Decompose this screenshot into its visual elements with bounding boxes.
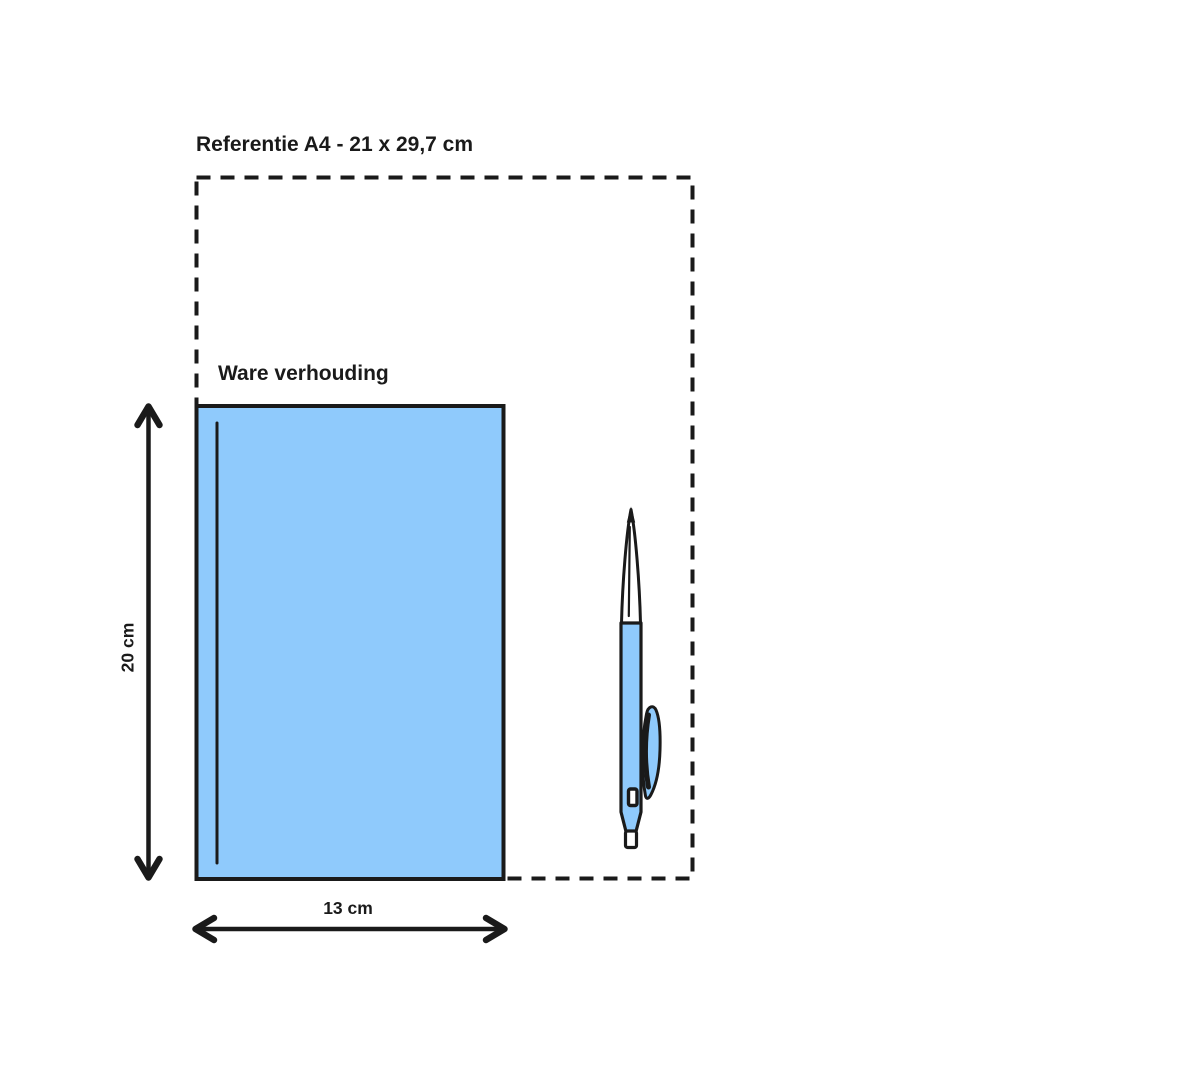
reference-title: Referentie A4 - 21 x 29,7 cm	[196, 133, 473, 157]
pen-refill-line	[629, 527, 630, 616]
height-dimension-label: 20 cm	[118, 612, 139, 684]
width-dimension-label: 13 cm	[270, 898, 426, 919]
size-comparison-diagram: Referentie A4 - 21 x 29,7 cm Ware verhou…	[0, 0, 1200, 1066]
pen-tip-icon	[627, 507, 635, 523]
object-rectangle	[197, 406, 504, 879]
diagram-drawing	[0, 0, 1200, 1066]
pen-button-hole	[629, 789, 638, 806]
height-dimension-arrow	[138, 407, 160, 878]
object-caption: Ware verhouding	[218, 362, 389, 386]
pen-illustration	[621, 507, 660, 848]
pen-push-button	[626, 831, 637, 848]
width-dimension-arrow	[196, 918, 505, 940]
pen-cone	[622, 510, 641, 624]
